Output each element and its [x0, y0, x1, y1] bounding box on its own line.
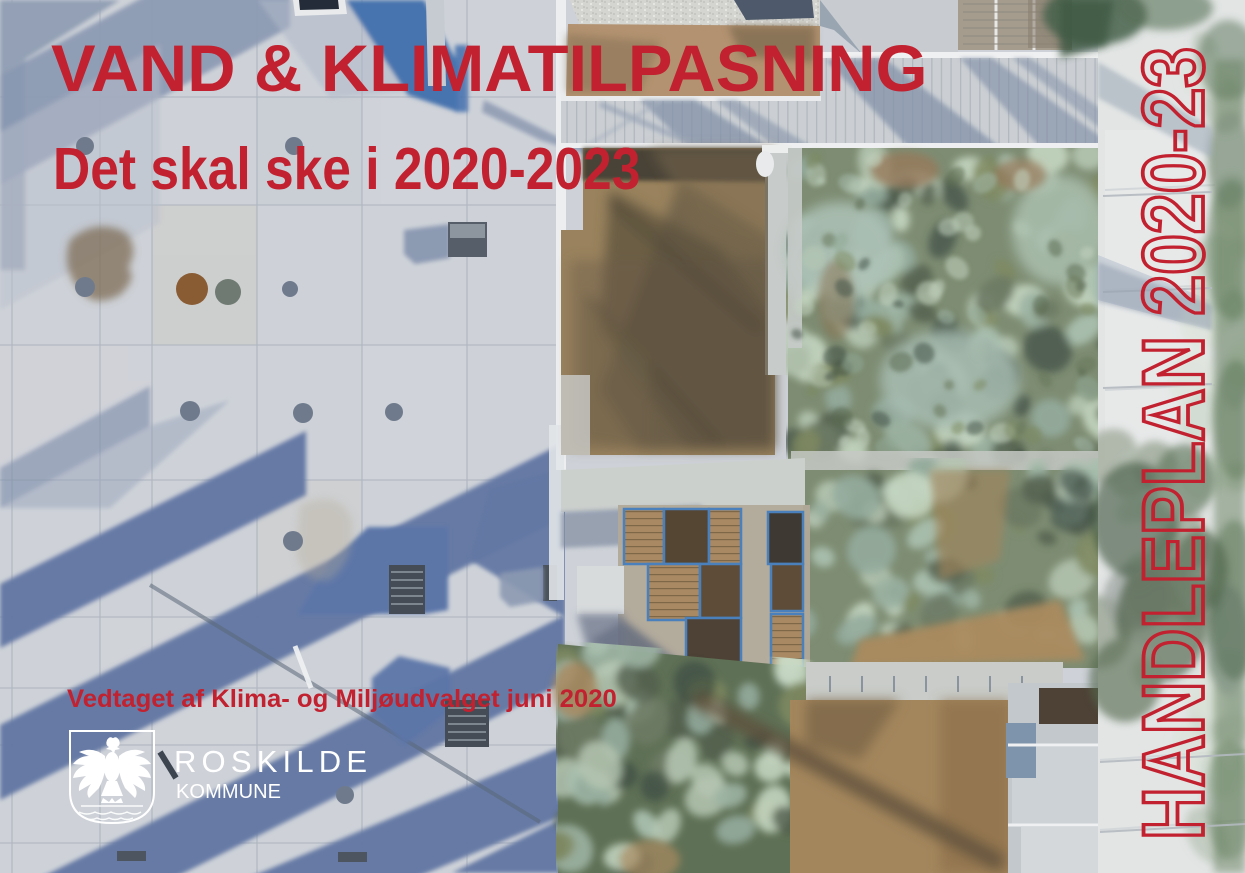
svg-text:KOMMUNE: KOMMUNE: [176, 781, 281, 803]
svg-text:ROSKILDE: ROSKILDE: [174, 744, 367, 779]
